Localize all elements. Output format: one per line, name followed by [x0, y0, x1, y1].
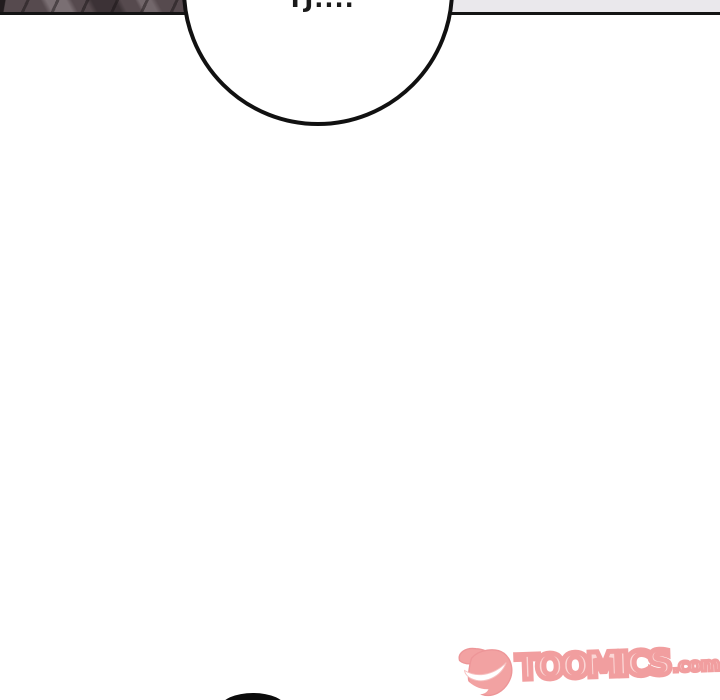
top-panel-right-band: [448, 0, 720, 12]
comic-page: TJ.... TOOMICS .com: [0, 0, 720, 700]
toomics-wordmark: TOOMICS: [515, 643, 669, 688]
toomics-domain-suffix: .com: [672, 653, 720, 677]
speech-bubble-text: TJ....: [287, 0, 355, 11]
toomics-mascot-icon: [456, 645, 516, 700]
toomics-watermark: TOOMICS .com: [456, 637, 720, 700]
speech-bubble: [182, 0, 454, 126]
bottom-figure-shape: [221, 693, 285, 700]
